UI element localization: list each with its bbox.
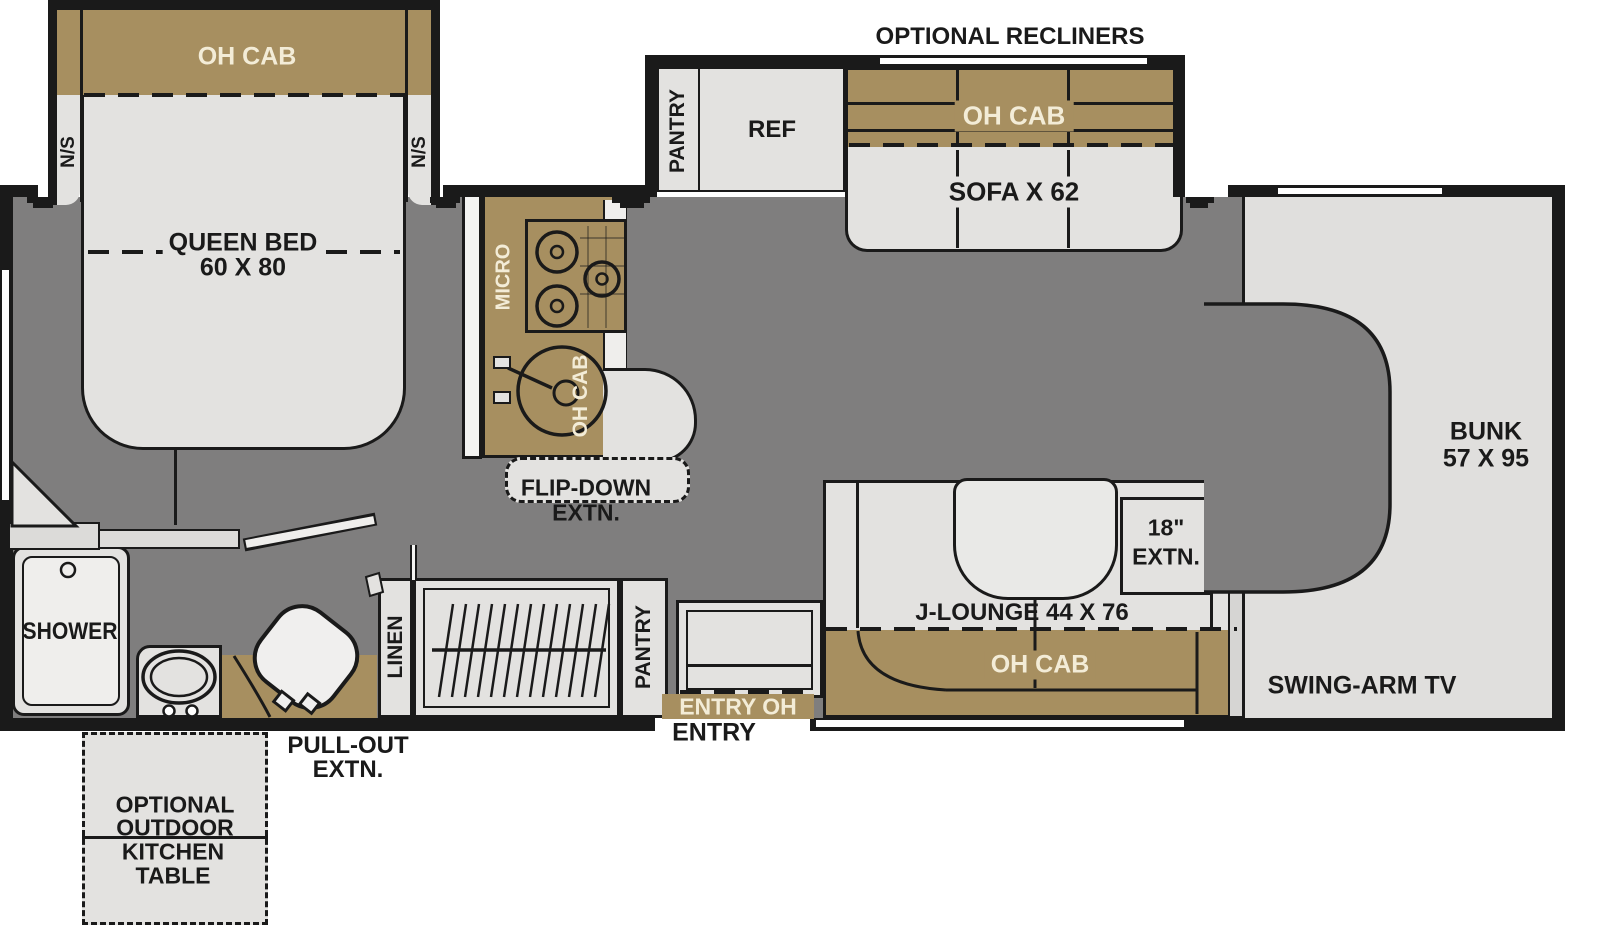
bedroom-divider-left bbox=[80, 10, 83, 202]
wardrobe-inner bbox=[423, 588, 610, 708]
entry-oh-label: ENTRY OH bbox=[679, 694, 797, 721]
window-lounge bbox=[816, 720, 1184, 727]
kitchen-partition-wall bbox=[462, 197, 482, 459]
window-front-right bbox=[1278, 188, 1442, 194]
window-rear bbox=[2, 270, 9, 500]
queen-bed-size: 60 X 80 bbox=[200, 254, 286, 283]
sofa-label: SOFA X 62 bbox=[941, 177, 1088, 208]
entry-step-line bbox=[688, 664, 811, 667]
bedroom-divider-right bbox=[405, 10, 408, 202]
bath-wall-left bbox=[8, 522, 100, 550]
nightstand-right-label: N/S bbox=[409, 136, 431, 168]
lounge-dash bbox=[826, 627, 1237, 631]
bedroom-slide-wall-right bbox=[431, 0, 440, 205]
window-sofa-slide bbox=[880, 58, 1147, 64]
entry-label: ENTRY bbox=[672, 719, 756, 748]
slide-sill bbox=[436, 203, 456, 208]
stove bbox=[525, 219, 627, 333]
slide-sill bbox=[33, 203, 53, 208]
pantry-bottom-label: PANTRY bbox=[632, 605, 656, 689]
sofa-dash bbox=[849, 143, 1179, 147]
lounge-table bbox=[953, 478, 1118, 600]
bed-foot-divider bbox=[174, 449, 177, 525]
bunk-label-2: 57 X 95 bbox=[1443, 445, 1529, 474]
wall-bottom-left bbox=[0, 718, 655, 731]
kitchen-ohcab-label: OH CAB bbox=[569, 355, 593, 438]
bedroom-ohcab-label: OH CAB bbox=[198, 43, 297, 72]
swing-arm-tv-label: SWING-ARM TV bbox=[1268, 672, 1457, 701]
wall-right bbox=[1552, 185, 1565, 731]
pantry-top-label: PANTRY bbox=[666, 89, 690, 173]
slide-sill bbox=[1190, 203, 1208, 208]
bath-vanity bbox=[136, 645, 222, 718]
bedroom-slide-wall-left bbox=[48, 0, 57, 205]
sofa-slide-wall-left bbox=[645, 55, 657, 197]
hall-wall-stub bbox=[410, 545, 417, 580]
toilet-dash bbox=[258, 653, 356, 657]
lounge-ext-label-1: 18" bbox=[1148, 515, 1185, 542]
flip-down-label-2: EXTN. bbox=[552, 500, 620, 527]
slide-sill bbox=[620, 203, 644, 208]
nightstand-left-label: N/S bbox=[58, 136, 80, 168]
wall-top-left-stub bbox=[0, 185, 38, 197]
bedroom-cab-dash bbox=[84, 93, 406, 97]
j-lounge-label: J-LOUNGE 44 X 76 bbox=[915, 599, 1128, 627]
pull-out-label-2: EXTN. bbox=[313, 756, 384, 784]
lounge-armrest-left bbox=[856, 482, 859, 628]
bedroom-slide-wall-top bbox=[48, 0, 440, 10]
toilet-floor bbox=[222, 655, 377, 718]
wall-top-middle bbox=[443, 185, 653, 197]
lounge-ohcab-label: OH CAB bbox=[985, 651, 1096, 680]
sofa-ohcab-label: OH CAB bbox=[955, 101, 1074, 132]
optional-recliners-label: OPTIONAL RECLINERS bbox=[876, 23, 1145, 51]
lounge-ext-label-2: EXTN. bbox=[1132, 544, 1200, 571]
sofa-slide-wall-right bbox=[1173, 55, 1185, 197]
bunk-label-1: BUNK bbox=[1450, 418, 1522, 447]
rv-floorplan: OH CAB N/S N/S QUEEN BED 60 X 80 OPTIONA… bbox=[0, 0, 1600, 946]
outdoor-label-4: TABLE bbox=[136, 863, 211, 890]
flip-down-label-1: FLIP-DOWN bbox=[521, 475, 651, 502]
micro-label: MICRO bbox=[493, 244, 516, 311]
outdoor-label-2: OUTDOOR bbox=[116, 815, 234, 842]
linen-label: LINEN bbox=[384, 616, 408, 679]
ref-label: REF bbox=[748, 116, 796, 144]
entry-step-inner bbox=[686, 610, 813, 690]
outdoor-label-3: KITCHEN bbox=[122, 839, 224, 866]
tv-wall bbox=[1228, 558, 1244, 718]
bath-wall-right bbox=[98, 529, 240, 549]
shower-label: SHOWER bbox=[22, 618, 117, 646]
